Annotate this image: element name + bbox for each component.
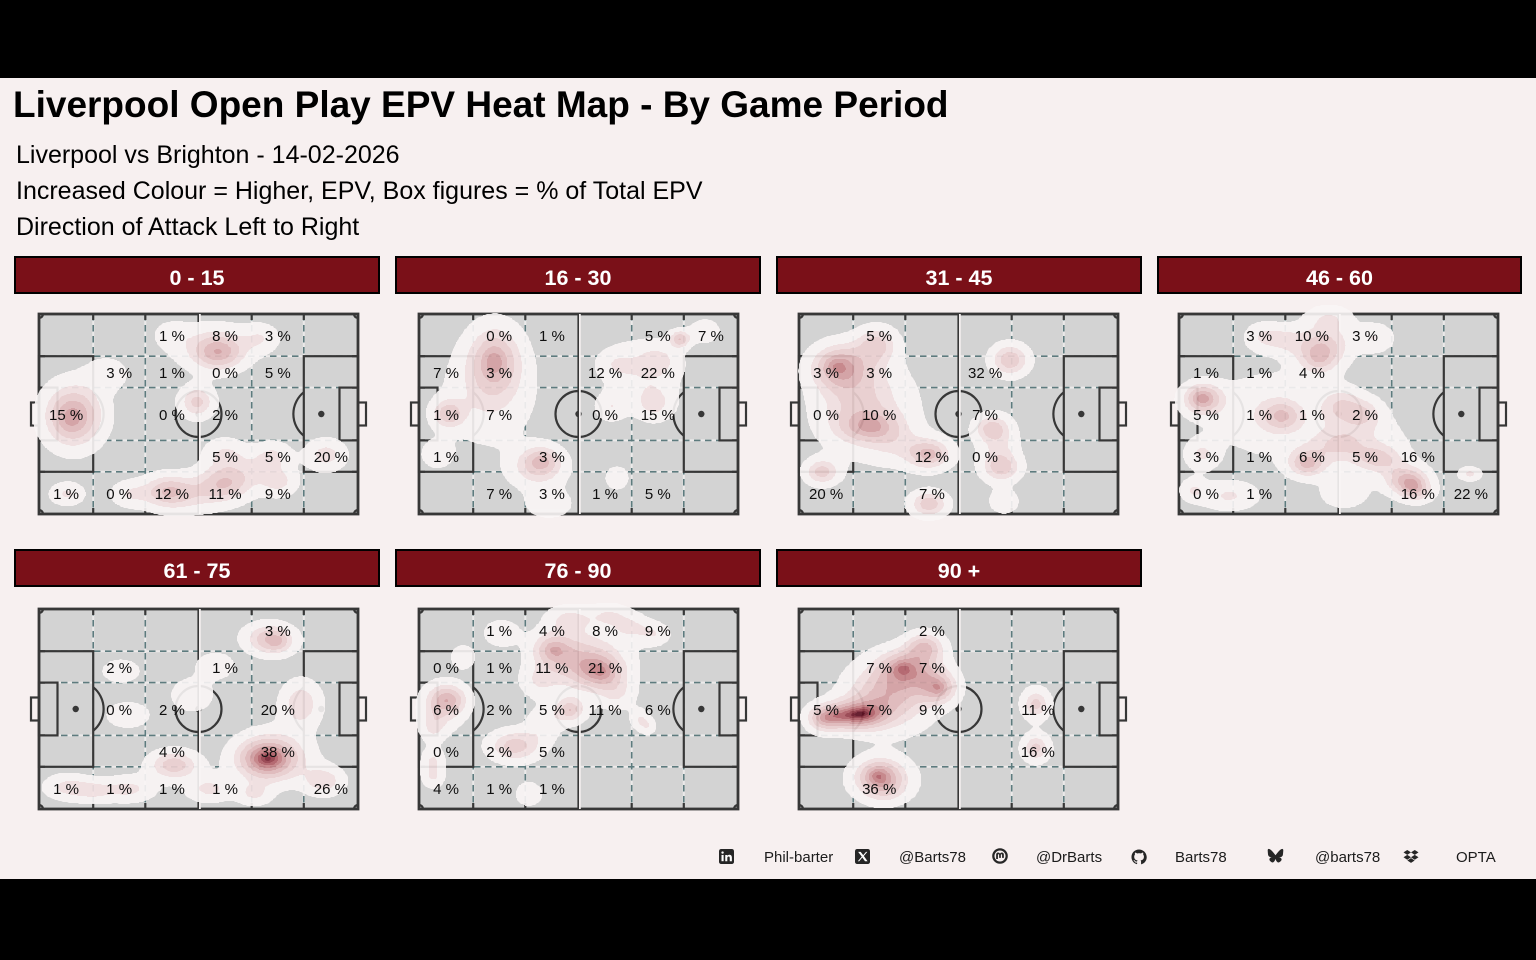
svg-text:12 %: 12 %: [588, 365, 622, 382]
svg-text:0 %: 0 %: [106, 486, 132, 503]
svg-text:3 %: 3 %: [1352, 328, 1378, 345]
svg-text:5 %: 5 %: [265, 365, 291, 382]
svg-text:3 %: 3 %: [265, 328, 291, 345]
svg-text:16 %: 16 %: [1401, 449, 1435, 466]
svg-text:10 %: 10 %: [1295, 328, 1329, 345]
svg-text:2 %: 2 %: [1352, 407, 1378, 424]
svg-text:0 %: 0 %: [433, 744, 459, 761]
svg-text:5 %: 5 %: [645, 328, 671, 345]
svg-text:1 %: 1 %: [433, 407, 459, 424]
svg-text:5 %: 5 %: [539, 744, 565, 761]
svg-text:0 %: 0 %: [159, 407, 185, 424]
svg-text:11 %: 11 %: [209, 486, 242, 503]
svg-text:21 %: 21 %: [588, 660, 622, 677]
svg-text:16 %: 16 %: [1401, 486, 1435, 503]
svg-text:7 %: 7 %: [433, 365, 459, 382]
svg-text:2 %: 2 %: [486, 744, 512, 761]
svg-text:0 %: 0 %: [486, 328, 512, 345]
svg-text:1 %: 1 %: [159, 365, 185, 382]
svg-text:9 %: 9 %: [265, 486, 291, 503]
svg-text:0 %: 0 %: [106, 702, 132, 719]
svg-text:1 %: 1 %: [159, 328, 185, 345]
svg-text:0 %: 0 %: [972, 449, 998, 466]
svg-text:1 %: 1 %: [53, 781, 79, 798]
svg-text:0 %: 0 %: [433, 660, 459, 677]
svg-text:4 %: 4 %: [539, 623, 565, 640]
svg-text:10 %: 10 %: [862, 407, 896, 424]
svg-text:7 %: 7 %: [866, 660, 892, 677]
svg-text:3 %: 3 %: [1193, 449, 1219, 466]
svg-text:22 %: 22 %: [641, 365, 675, 382]
svg-text:4 %: 4 %: [1299, 365, 1325, 382]
svg-text:3 %: 3 %: [1246, 328, 1272, 345]
svg-text:2 %: 2 %: [919, 623, 945, 640]
svg-text:32 %: 32 %: [968, 365, 1002, 382]
svg-text:20 %: 20 %: [809, 486, 843, 503]
svg-text:9 %: 9 %: [645, 623, 671, 640]
svg-text:12 %: 12 %: [155, 486, 189, 503]
svg-text:7 %: 7 %: [698, 328, 724, 345]
svg-text:5 %: 5 %: [212, 449, 238, 466]
svg-text:1 %: 1 %: [1299, 407, 1325, 424]
svg-text:0 %: 0 %: [1193, 486, 1219, 503]
svg-text:1 %: 1 %: [106, 781, 132, 798]
svg-text:1 %: 1 %: [539, 781, 565, 798]
svg-text:2 %: 2 %: [486, 702, 512, 719]
svg-text:3 %: 3 %: [539, 486, 565, 503]
svg-text:5 %: 5 %: [1193, 407, 1219, 424]
svg-text:8 %: 8 %: [592, 623, 618, 640]
svg-text:1 %: 1 %: [433, 449, 459, 466]
svg-text:15 %: 15 %: [49, 407, 83, 424]
svg-text:0 %: 0 %: [813, 407, 839, 424]
svg-text:5 %: 5 %: [1352, 449, 1378, 466]
svg-text:5 %: 5 %: [866, 328, 892, 345]
svg-text:15 %: 15 %: [641, 407, 675, 424]
svg-text:22 %: 22 %: [1454, 486, 1488, 503]
svg-text:11 %: 11 %: [1021, 702, 1054, 719]
svg-text:7 %: 7 %: [486, 407, 512, 424]
svg-text:1 %: 1 %: [1193, 365, 1219, 382]
svg-text:11 %: 11 %: [535, 660, 568, 677]
svg-text:6 %: 6 %: [433, 702, 459, 719]
svg-text:16 %: 16 %: [1021, 744, 1055, 761]
svg-text:7 %: 7 %: [486, 486, 512, 503]
svg-text:1 %: 1 %: [1246, 407, 1272, 424]
svg-text:7 %: 7 %: [919, 660, 945, 677]
svg-text:38 %: 38 %: [261, 744, 295, 761]
svg-text:1 %: 1 %: [486, 660, 512, 677]
svg-text:1 %: 1 %: [539, 328, 565, 345]
svg-text:5 %: 5 %: [265, 449, 291, 466]
svg-text:7 %: 7 %: [919, 486, 945, 503]
svg-text:1 %: 1 %: [53, 486, 79, 503]
svg-text:1 %: 1 %: [212, 781, 238, 798]
svg-text:4 %: 4 %: [433, 781, 459, 798]
svg-text:36 %: 36 %: [862, 781, 896, 798]
svg-text:1 %: 1 %: [1246, 365, 1272, 382]
svg-text:9 %: 9 %: [919, 702, 945, 719]
svg-text:2 %: 2 %: [159, 702, 185, 719]
svg-text:5 %: 5 %: [813, 702, 839, 719]
svg-text:3 %: 3 %: [486, 365, 512, 382]
svg-text:1 %: 1 %: [1246, 449, 1272, 466]
svg-text:1 %: 1 %: [212, 660, 238, 677]
svg-text:3 %: 3 %: [265, 623, 291, 640]
svg-text:4 %: 4 %: [159, 744, 185, 761]
svg-text:1 %: 1 %: [486, 781, 512, 798]
svg-text:6 %: 6 %: [1299, 449, 1325, 466]
svg-text:6 %: 6 %: [645, 702, 671, 719]
svg-text:1 %: 1 %: [1246, 486, 1272, 503]
svg-text:5 %: 5 %: [539, 702, 565, 719]
svg-text:20 %: 20 %: [314, 449, 348, 466]
svg-text:3 %: 3 %: [813, 365, 839, 382]
svg-text:11 %: 11 %: [589, 702, 622, 719]
svg-text:3 %: 3 %: [866, 365, 892, 382]
svg-text:0 %: 0 %: [212, 365, 238, 382]
svg-text:12 %: 12 %: [915, 449, 949, 466]
svg-text:2 %: 2 %: [212, 407, 238, 424]
svg-text:7 %: 7 %: [866, 702, 892, 719]
svg-text:1 %: 1 %: [159, 781, 185, 798]
svg-text:2 %: 2 %: [106, 660, 132, 677]
svg-text:3 %: 3 %: [106, 365, 132, 382]
svg-text:1 %: 1 %: [486, 623, 512, 640]
svg-text:8 %: 8 %: [212, 328, 238, 345]
svg-text:26 %: 26 %: [314, 781, 348, 798]
svg-text:5 %: 5 %: [645, 486, 671, 503]
svg-text:20 %: 20 %: [261, 702, 295, 719]
svg-text:7 %: 7 %: [972, 407, 998, 424]
svg-text:0 %: 0 %: [592, 407, 618, 424]
svg-text:3 %: 3 %: [539, 449, 565, 466]
svg-text:1 %: 1 %: [592, 486, 618, 503]
